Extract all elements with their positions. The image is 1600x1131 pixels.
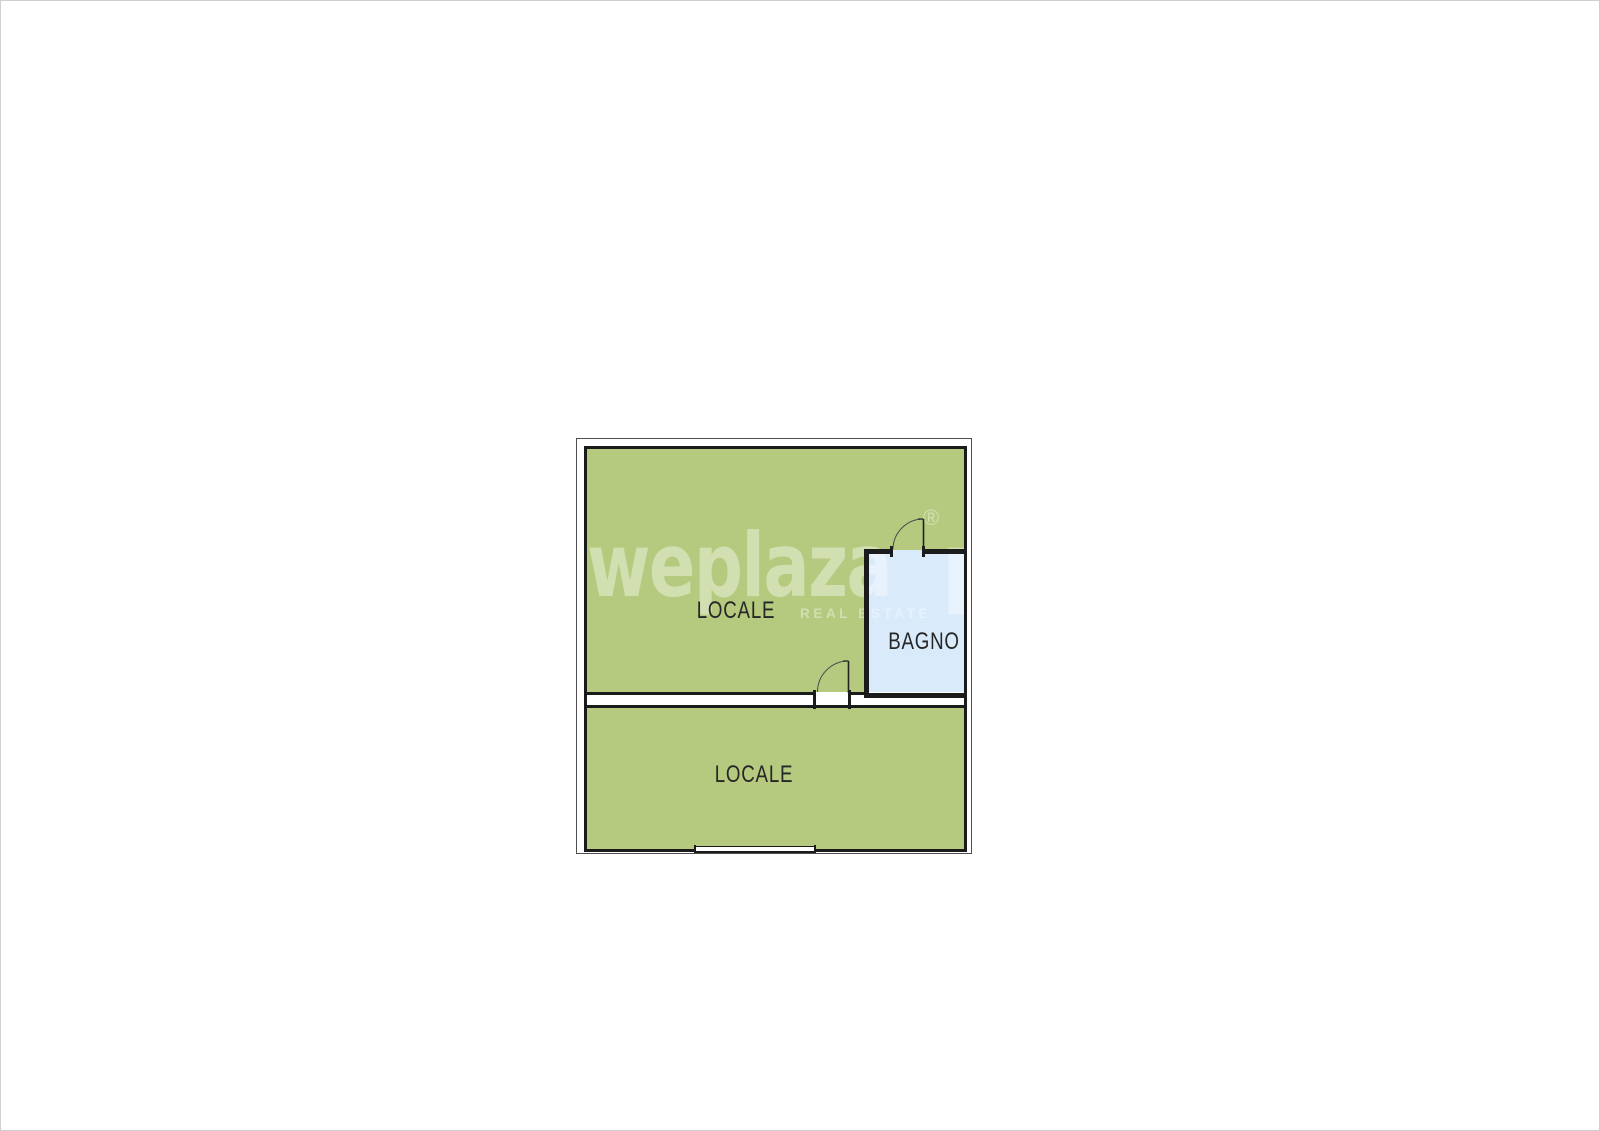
middle-door-jamb-left <box>813 690 816 709</box>
middle-wall-lower-face <box>587 705 964 708</box>
room-label-bagno: BAGNO <box>888 628 960 656</box>
middle-door-jamb-right <box>848 690 851 709</box>
page-background: weplaza ® p REAL ESTATE <box>0 0 1600 1131</box>
window-jamb-left <box>694 845 696 853</box>
bagno-door-opening-top <box>892 548 923 550</box>
window-bottom <box>695 846 814 853</box>
bagno-wall <box>864 549 964 698</box>
window-jamb-right <box>814 845 816 853</box>
room-label-locale-lower: LOCALE <box>715 761 794 789</box>
room-label-locale-upper: LOCALE <box>697 597 776 625</box>
middle-wall-upper-face-left <box>587 692 815 695</box>
bagno-door-jamb-left <box>890 546 893 557</box>
floorplan: weplaza ® p REAL ESTATE <box>576 438 972 854</box>
bagno-door-jamb-right <box>922 546 925 557</box>
